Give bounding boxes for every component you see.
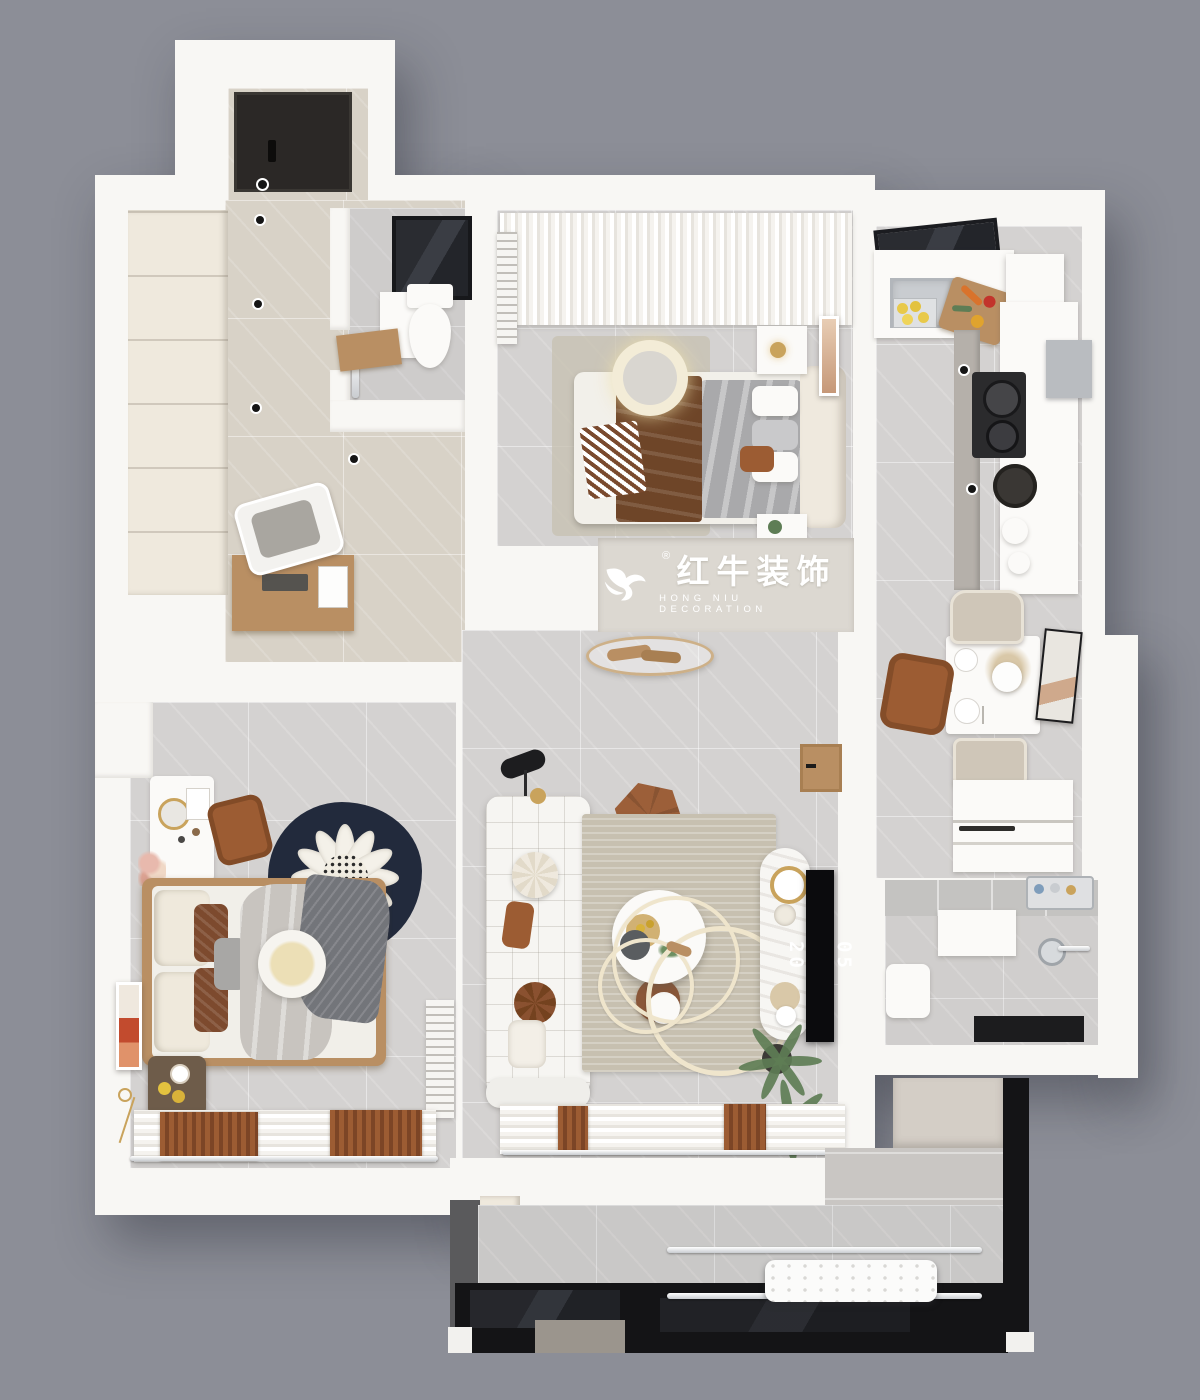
yellow-pepper (969, 313, 985, 329)
dining-table (946, 636, 1040, 734)
bedroom1-striped-throw (579, 420, 646, 499)
fruit (172, 1090, 185, 1103)
curtain-rod (130, 1156, 438, 1161)
kettle (993, 464, 1037, 508)
brand-name-zh: 红牛装饰 (677, 555, 837, 588)
drying-rack-body (765, 1260, 937, 1302)
apartment-floorplan-3d-render: ® 红牛装饰 HONG NIU DECORATION (0, 0, 1200, 1400)
lemon (897, 303, 908, 314)
ceiling-spotlight (258, 180, 267, 189)
wall-art-print (822, 319, 836, 393)
pot (986, 420, 1019, 453)
toiletry-bottle (1034, 884, 1044, 894)
entry-door-handle-icon (268, 140, 276, 162)
cutlery (982, 706, 984, 724)
balcony-glass (660, 1298, 910, 1332)
wall-art (116, 982, 142, 1070)
entry-door (234, 92, 352, 192)
ceiling-spotlight (254, 300, 262, 308)
door-handle-icon (806, 764, 816, 768)
floor-lamp-gold-head (118, 1088, 132, 1102)
watermark-band: ® 红牛装饰 HONG NIU DECORATION (598, 538, 854, 632)
bedroom1-curtains (500, 213, 852, 325)
tv-screen: 05 20 (806, 870, 834, 1042)
dining-chair-wood (878, 651, 956, 737)
wall-slab-right-step (1098, 635, 1138, 1078)
decor-cup (170, 1064, 190, 1084)
brand-name-en: HONG NIU DECORATION (659, 593, 854, 615)
speaker-round (770, 866, 808, 904)
range-hood (1006, 254, 1064, 306)
bathroom1-wall (330, 400, 465, 432)
registered-mark: ® (662, 550, 670, 562)
microwave (1046, 340, 1092, 398)
pillow-knit-round (514, 982, 556, 1024)
fridge-seam (953, 820, 1073, 823)
curtain-rod (502, 1150, 850, 1155)
desk-chair-seat (250, 498, 322, 559)
bedroom1-ac-unit (497, 232, 517, 344)
carrot (960, 284, 984, 307)
bathroom2-mirror-cabinet (938, 910, 1016, 956)
decor-vase-gold (530, 788, 546, 804)
shower-arm (1058, 946, 1090, 951)
washbasin (886, 964, 930, 1018)
pendant-wood-blade (641, 649, 682, 663)
decor-vase (774, 904, 796, 926)
shower-floor-drain (974, 1016, 1084, 1042)
greens (952, 305, 972, 312)
balcony-frame-cap (1006, 1332, 1034, 1352)
balcony-frame-cap (448, 1327, 472, 1353)
bedroom2-wall-corner (95, 702, 153, 778)
cosmetic-item (178, 836, 185, 843)
cosmetic-item (192, 828, 200, 836)
cooktop (972, 372, 1026, 458)
watermark-text: 红牛装饰 HONG NIU DECORATION (659, 555, 854, 615)
tv-clock: 05 20 (806, 870, 834, 1042)
curtain-wood-slat (558, 1106, 588, 1152)
kitchen-small-appliance (1002, 518, 1028, 544)
floor-lamp-stem (524, 770, 527, 796)
vanity-card (186, 788, 210, 820)
fridge-handle (959, 826, 1015, 831)
balcony-cabinet-block (893, 1078, 1003, 1148)
nightstand-dark (148, 1056, 206, 1116)
shower-shelf (1026, 876, 1094, 910)
drying-rack-rail (667, 1247, 982, 1253)
toiletry-bottle (1066, 885, 1076, 895)
bathroom1-wall (330, 208, 350, 330)
pillow-boucle (508, 1020, 546, 1068)
dining-chair (950, 590, 1024, 644)
curtain-wood-slat (330, 1110, 422, 1156)
curtain-wood-slat (724, 1104, 766, 1150)
ceiling-spotlight (252, 404, 260, 412)
bathroom2-door (800, 744, 842, 792)
fridge-seam (953, 842, 1073, 845)
lemon (918, 312, 929, 323)
ceiling-spotlight (256, 216, 264, 224)
tv-clock-minutes: 20 (785, 941, 807, 972)
pot (983, 380, 1021, 418)
mirror-glass (1037, 630, 1080, 721)
table-vase (992, 662, 1022, 692)
bedroom2-ceiling-light-inner (268, 940, 316, 988)
toiletry-bottle (1050, 883, 1060, 893)
wall-art-print (119, 985, 139, 1067)
plant-small (768, 520, 782, 534)
keyboard (262, 574, 308, 591)
plate (954, 698, 980, 724)
laptop (318, 566, 348, 608)
plate (954, 648, 978, 672)
hallway-wardrobe-cabinets (128, 210, 228, 595)
shower-head (1038, 938, 1066, 966)
bedroom1-ceiling-light-inner (623, 351, 677, 405)
fruit (158, 1082, 171, 1095)
ceiling-spotlight (968, 485, 976, 493)
pillow (752, 386, 798, 416)
ceiling-spotlight (350, 455, 358, 463)
bedroom2-radiator (426, 1000, 454, 1118)
tv-clock-hours: 05 (833, 941, 855, 972)
hongniu-bull-logo (598, 565, 649, 605)
living-balcony-curtains (500, 1104, 845, 1154)
lemon-tray (893, 298, 937, 328)
lemon (902, 314, 913, 325)
refrigerator (953, 780, 1073, 872)
pillow-accent (740, 446, 774, 472)
bedroom1-ceiling-light (612, 340, 688, 416)
red-pepper (982, 294, 997, 309)
lemon (910, 301, 921, 312)
bedroom2-ceiling-light (258, 930, 326, 998)
bathroom1-door-open (336, 328, 402, 371)
table-lamp (770, 342, 786, 358)
wall-art (819, 316, 839, 396)
balcony-window-frame-right (1003, 1078, 1029, 1334)
passage-pendant-light (586, 636, 714, 676)
balcony-step-stone (535, 1320, 625, 1353)
kitchen-small-appliance (1008, 552, 1030, 574)
ceiling-spotlight (960, 366, 968, 374)
pouf-round (512, 852, 558, 898)
curtain-wood-slat (160, 1112, 258, 1160)
